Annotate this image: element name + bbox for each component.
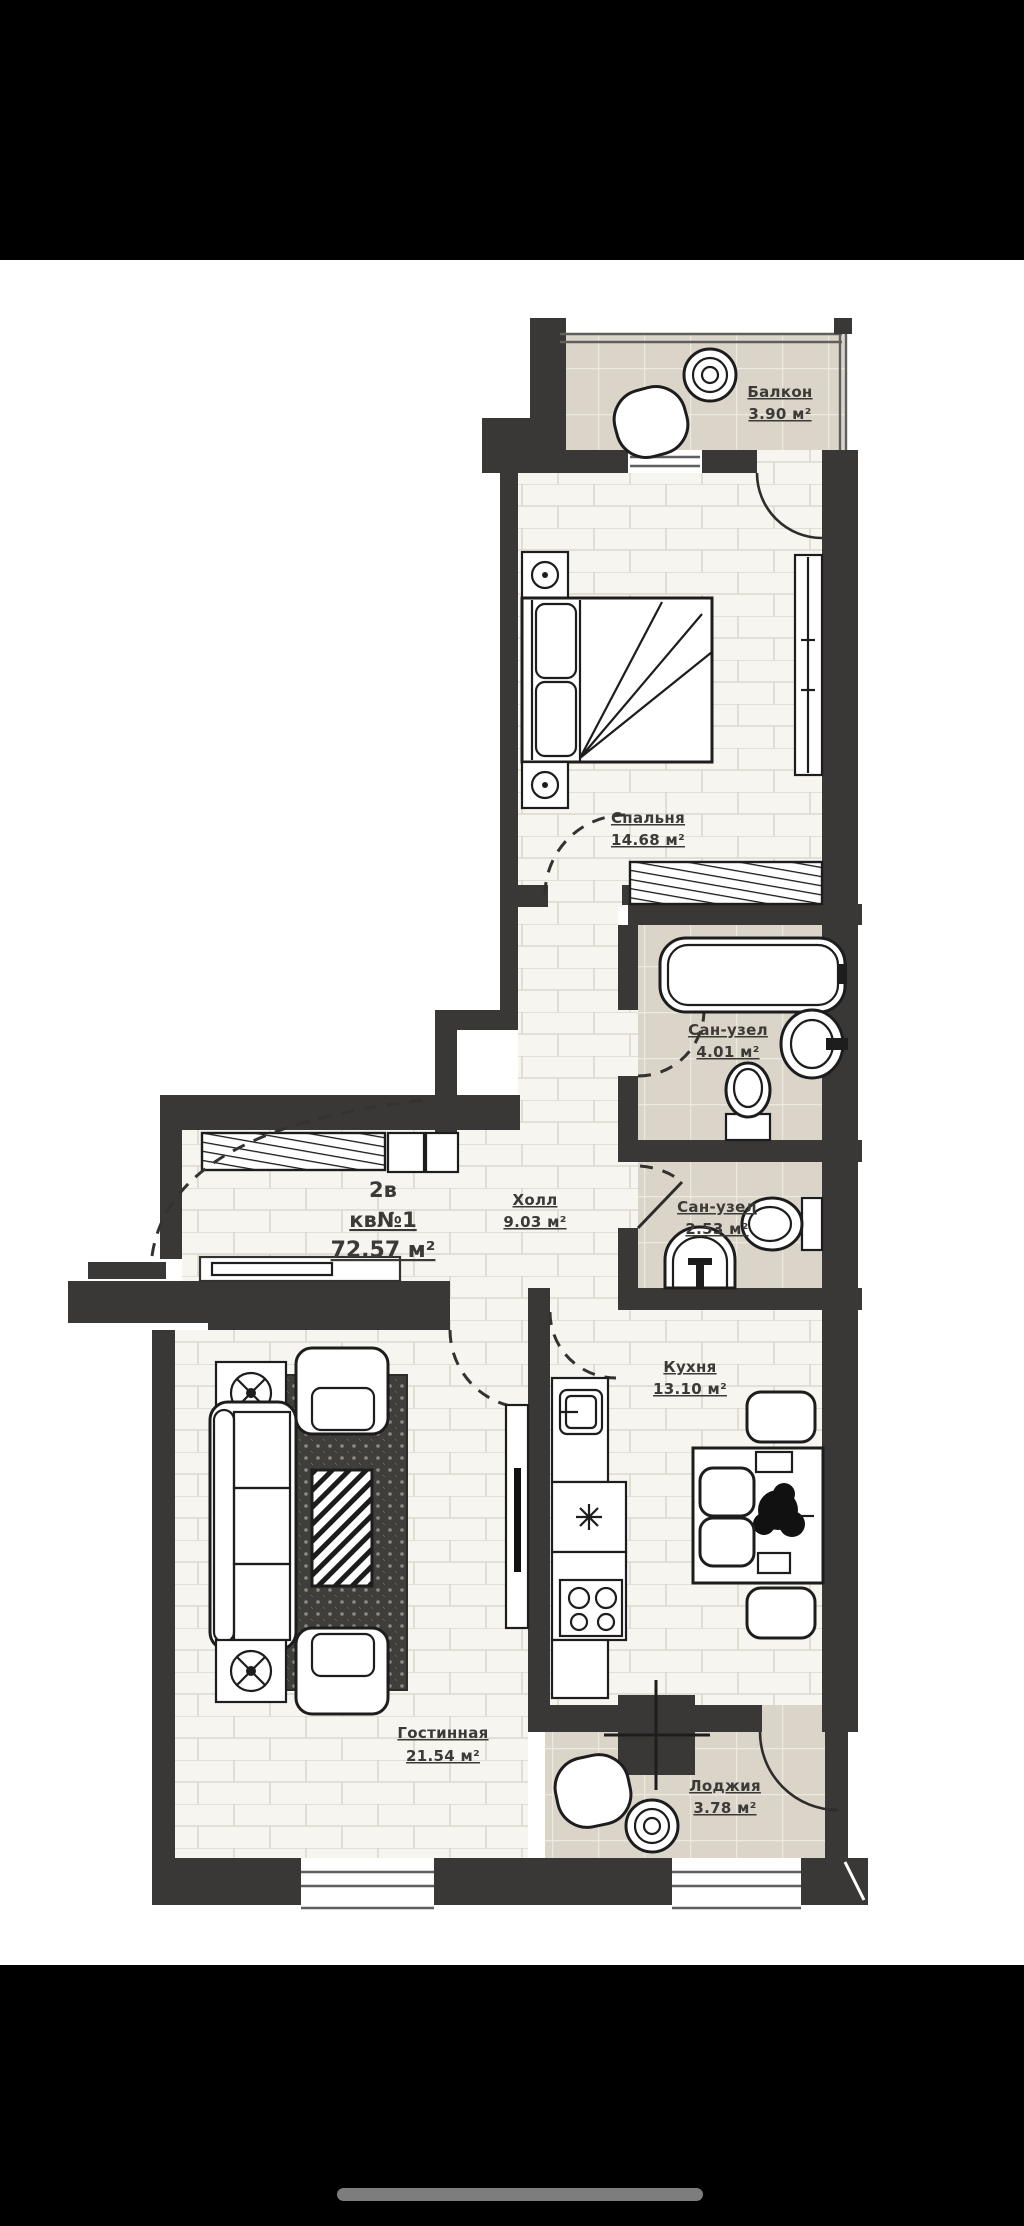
living-armchair-top (296, 1348, 388, 1434)
kitchen-area: 13.10 м² (653, 1380, 727, 1398)
bedroom-nightstand-bottom (522, 762, 568, 808)
phone-bottom-letterbox-bar (0, 1965, 1024, 2226)
bedroom-wardrobe (795, 555, 822, 775)
home-indicator-handle[interactable] (337, 2188, 703, 2201)
apartment-unit-label: кв№1 (349, 1208, 416, 1232)
living-coffee-table (312, 1470, 372, 1586)
hall-area: 9.03 м² (503, 1213, 566, 1231)
loggia-plant-pot (626, 1800, 678, 1852)
living-tv-stand (506, 1405, 528, 1628)
balcony-label: Балкон (747, 383, 812, 401)
floor-plan-image: Балкон 3.90 м² Спальня 14.68 м² (0, 0, 1024, 2226)
loggia-label: Лоджия (689, 1777, 761, 1795)
bathroom-large-toilet (726, 1063, 770, 1140)
living-area: 21.54 м² (406, 1747, 480, 1765)
bathroom-small-area: 2.53 м² (685, 1220, 748, 1238)
loggia-area: 3.78 м² (693, 1799, 756, 1817)
bedroom-bed (522, 598, 712, 762)
kitchen-stove (560, 1580, 622, 1636)
bathroom-large-area: 4.01 м² (696, 1043, 759, 1061)
bedroom-label: Спальня (611, 809, 685, 827)
living-armchair-bottom (296, 1628, 388, 1714)
living-label: Гостинная (397, 1724, 488, 1742)
living-side-table-bottom (216, 1640, 286, 1702)
apartment-total-area: 72.57 м² (331, 1238, 436, 1263)
balcony-plant-pot (684, 349, 736, 401)
balcony-area: 3.90 м² (748, 405, 811, 423)
kitchen-label: Кухня (663, 1358, 716, 1376)
apartment-type-label: 2в (369, 1178, 397, 1202)
bathroom-small-label: Сан-узел (677, 1198, 757, 1216)
bedroom-nightstand-top (522, 552, 568, 598)
hall-label: Холл (512, 1191, 557, 1209)
bathtub (660, 938, 847, 1012)
living-sofa (210, 1402, 296, 1650)
bedroom-area: 14.68 м² (611, 831, 685, 849)
bathroom-large-label: Сан-узел (688, 1021, 768, 1039)
